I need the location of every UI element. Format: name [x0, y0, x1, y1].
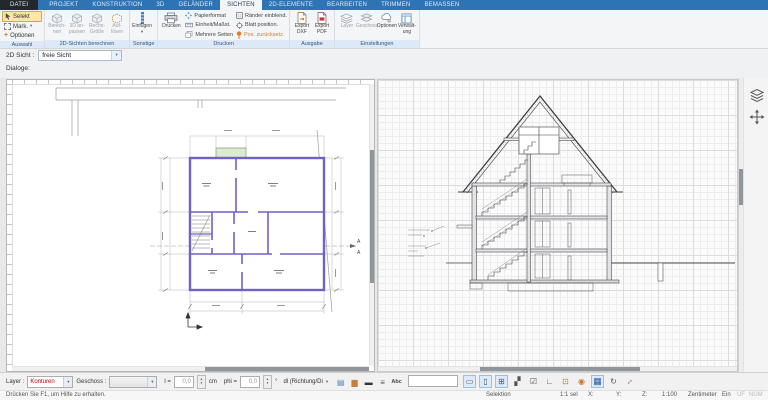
aufloesen-label: Auf- lösen	[111, 24, 123, 36]
einheit-massstab-button[interactable]: Einheit/Maßst.	[185, 21, 233, 30]
status-z-label: Z:	[642, 392, 647, 398]
auswahl-optionen-label: Optionen	[10, 33, 34, 39]
check-option-icon[interactable]: ☑	[527, 375, 540, 388]
geschoss-field-label: Geschoss :	[76, 379, 106, 385]
tab-bemassen[interactable]: BEMASSEN	[417, 0, 466, 10]
length-field-label: l =	[164, 379, 171, 385]
status-help-text: Drücken Sie F1, um Hilfe zu erhalten.	[6, 392, 106, 398]
layer-value: Konturen	[30, 379, 54, 385]
ribbon-group-berechnen: Berech- nen 3D an- passen Rechn- Größe A…	[45, 10, 130, 48]
fill-style-icon[interactable]: ▆	[348, 376, 361, 389]
line-style-icon[interactable]: ≡	[376, 376, 389, 389]
length-input[interactable]: 0,0	[174, 376, 194, 388]
tab-bearbeiten[interactable]: BEARBEITEN	[320, 0, 374, 10]
selection-box-icon	[4, 23, 11, 30]
group-label-ausgabe: Ausgabe	[290, 40, 334, 48]
right-tool-strip	[738, 78, 768, 373]
einheit-massstab-label: Einheit/Maßst.	[195, 22, 230, 28]
layer-field-label: Layer :	[6, 379, 24, 385]
right-viewport-vscrollbar[interactable]	[739, 78, 744, 373]
raender-einblenden-button[interactable]: Ränder einblend.	[236, 11, 287, 20]
diagonal-arrows-icon[interactable]: ↕	[623, 375, 636, 388]
section-drawing[interactable]	[378, 80, 735, 368]
export-dxf-label: Export DXF	[295, 24, 309, 36]
raster-snap-icon[interactable]: ▦	[591, 375, 604, 388]
mehrere-seiten-label: Mehrere Seiten	[195, 32, 233, 38]
drucken-label: Drucken	[162, 24, 181, 30]
center-snap-icon[interactable]: ◉	[575, 375, 588, 388]
length-value: 0,0	[183, 379, 191, 385]
spin-down-icon: ▾	[267, 382, 269, 386]
layer-label: Layer	[341, 24, 354, 30]
chevron-down-icon: ▾	[147, 377, 156, 387]
angle-snap-icon[interactable]: ▞	[511, 375, 524, 388]
status-scale-sel: 1:1 sel	[560, 392, 578, 398]
tab-2d-elemente[interactable]: 2D-ELEMENTE	[262, 0, 320, 10]
bottom-toolbar: Layer : Konturen ▾ Geschoss : ▾ l = 0,0 …	[0, 372, 768, 391]
raender-einblenden-label: Ränder einblend.	[245, 13, 287, 19]
group-label-einstellungen: Einstellungen	[335, 40, 419, 48]
angle-unit: °	[275, 379, 277, 385]
export-pdf-button[interactable]: Export PDF	[312, 11, 332, 39]
text-style-icon[interactable]: Abc	[390, 376, 403, 389]
tab-trimmen[interactable]: TRIMMEN	[374, 0, 417, 10]
ribbon-group-ausgabe: Export DXF Export PDF Ausgabe	[290, 10, 335, 48]
drucken-button[interactable]: Drucken	[160, 11, 182, 39]
position-circle-icon	[236, 22, 243, 29]
corner-snap-icon[interactable]: ∟	[543, 375, 556, 388]
anpassen-3d-button[interactable]: 3D an- passen	[67, 11, 87, 39]
group-label-berechnen: 2D-Sichten berechnen	[45, 40, 129, 48]
angle-input[interactable]: 0,0	[240, 376, 260, 388]
viewport-section[interactable]	[377, 79, 738, 372]
cursor-icon	[5, 13, 11, 20]
selekt-label: Selekt	[13, 14, 30, 20]
viewport-floor-plan[interactable]: A A	[6, 79, 375, 372]
chevron-down-icon: ▾	[111, 51, 121, 60]
group-label-drucken: Drucken	[158, 40, 289, 48]
blatt-position-button[interactable]: Blatt position.	[236, 21, 287, 30]
rotate-tool-icon[interactable]: ↻	[607, 375, 620, 388]
angle-field-label: phi =	[224, 379, 237, 385]
blatt-position-label: Blatt position.	[245, 22, 278, 28]
geschoss-label: Geschoss	[356, 24, 378, 30]
layer-button[interactable]: Layer	[337, 11, 357, 39]
status-mode: Selektion	[486, 392, 511, 398]
papierformat-button[interactable]: Papierformat	[185, 11, 233, 20]
right-viewport-hscrollbar[interactable]	[378, 366, 737, 371]
angle-spinner[interactable]: ▴▾	[263, 375, 272, 389]
status-uf-indicator: UF	[737, 392, 745, 398]
tab-projekt[interactable]: PROJEKT	[42, 0, 85, 10]
layers-tool-button[interactable]	[748, 86, 766, 104]
hatch-style-icon[interactable]: ▤	[334, 376, 347, 389]
frame-icon	[236, 12, 243, 19]
mehrere-seiten-button[interactable]: Mehrere Seiten	[185, 30, 233, 39]
pos-zuruecksetzen-button[interactable]: Pos. zurücksetz.	[236, 30, 287, 39]
layers-icon	[749, 88, 765, 103]
length-unit: cm	[209, 379, 217, 385]
pos-zuruecksetzen-label: Pos. zurücksetz.	[244, 32, 284, 38]
export-pdf-label: Export PDF	[315, 24, 329, 36]
dialoge-panel-header: Dialoge:	[0, 62, 768, 78]
vscroll-thumb[interactable]	[739, 169, 743, 205]
rechengroesse-button[interactable]: Rechn- Größe	[87, 11, 107, 39]
vicado-cad-window: { "ribbon": { "tabs": [ {"label":"DATEI"…	[0, 0, 768, 400]
view-selector-dropdown[interactable]: freie Sicht ▾	[38, 50, 122, 61]
pin-icon	[236, 31, 242, 39]
spin-down-icon: ▾	[200, 382, 202, 386]
hscroll-thumb[interactable]	[205, 367, 369, 371]
vscroll-thumb[interactable]	[370, 150, 374, 283]
tab-gelaender[interactable]: GELÄNDER	[171, 0, 220, 10]
chevron-down-icon: ▾	[30, 24, 32, 29]
berechnen-button[interactable]: Berech- nen	[47, 11, 67, 39]
ribbon-group-drucken: Drucken Papierformat Einheit/Maßst. Mehr…	[158, 10, 290, 48]
view-selector-value: freie Sicht	[42, 52, 71, 59]
dialoge-label: Dialoge:	[6, 65, 30, 72]
expand-arrows-icon	[185, 12, 192, 19]
left-viewport-vscrollbar[interactable]	[369, 84, 374, 366]
anpassen-3d-label: 3D an- passen	[69, 24, 85, 36]
view-selector-bar: 2D Sicht : freie Sicht ▾	[0, 49, 768, 62]
status-bar: Drücken Sie F1, um Hilfe zu erhalten. Se…	[0, 390, 768, 400]
markieren-button[interactable]: Mark. ▾	[2, 22, 42, 31]
line-width-icon[interactable]: ▬	[362, 376, 375, 389]
section-marker-bottom: A	[357, 250, 361, 256]
status-y-label: Y:	[616, 392, 621, 398]
tab-datei[interactable]: DATEI	[0, 0, 38, 10]
berechnen-label: Berech- nen	[48, 24, 66, 36]
markieren-label: Mark.	[13, 24, 28, 30]
grid-window-icon[interactable]: ⊞	[495, 375, 508, 388]
status-ein: Ein	[722, 392, 731, 398]
tab-sichten[interactable]: SICHTEN	[220, 0, 262, 10]
export-dxf-button[interactable]: Export DXF	[292, 11, 312, 39]
angle-value: 0,0	[249, 379, 257, 385]
status-scale: 1:100	[662, 392, 677, 398]
ribbon-group-einstellungen: Layer Geschoss Optionen Verwalt- ung Ein…	[335, 10, 420, 48]
selekt-button[interactable]: Selekt	[2, 11, 42, 22]
rechengroesse-label: Rechn- Größe	[89, 24, 105, 36]
tab-3d[interactable]: 3D	[149, 0, 171, 10]
point-snap-icon[interactable]: ⊡	[559, 375, 572, 388]
pages-icon	[185, 31, 193, 38]
chevron-down-icon: ▾	[63, 377, 72, 387]
length-spinner[interactable]: ▴▾	[197, 375, 206, 389]
verwaltung-button[interactable]: Verwalt- ung	[397, 11, 417, 39]
geschoss-dropdown[interactable]: ▾	[109, 376, 157, 388]
aufloesen-button[interactable]: Auf- lösen	[107, 11, 127, 39]
chevron-down-icon: ▾	[141, 30, 143, 35]
section-marker-top: A	[357, 239, 361, 245]
ribbon-group-auswahl: Selekt Mark. ▾ + Optionen Auswahl	[0, 10, 45, 48]
auswahl-optionen-button[interactable]: + Optionen	[2, 31, 42, 40]
page-view-icon[interactable]: ▯	[479, 375, 492, 388]
einfuegen-button[interactable]: Einfügen ▾	[132, 11, 152, 39]
chevron-down-icon[interactable]: ▾	[326, 380, 328, 385]
pan-tool-button[interactable]	[748, 108, 766, 126]
ribbon-group-sonstige: Einfügen ▾ Sonstige	[130, 10, 158, 48]
status-num-indicator: NUM	[749, 392, 763, 398]
status-unit: Zentimeter	[688, 392, 717, 398]
view-selector-label: 2D Sicht :	[6, 52, 34, 59]
group-label-sonstige: Sonstige	[130, 40, 157, 48]
layer-dropdown[interactable]: Konturen ▾	[27, 376, 73, 388]
main-area: A A	[0, 78, 768, 373]
hscroll-thumb[interactable]	[480, 367, 640, 371]
tab-konstruktion[interactable]: KONSTRUKTION	[85, 0, 149, 10]
plus-icon: +	[4, 32, 8, 39]
einstellungen-optionen-label: Optionen	[377, 24, 397, 30]
einstellungen-optionen-button[interactable]: Optionen	[377, 11, 397, 39]
coordinate-input[interactable]	[408, 375, 458, 387]
direction-mode-label: dl (Richtung/Di	[283, 379, 322, 385]
group-label-auswahl: Auswahl	[0, 41, 44, 48]
left-viewport-hscrollbar[interactable]	[12, 366, 369, 371]
verwaltung-label: Verwalt- ung	[398, 24, 416, 36]
line-snap-icon[interactable]: ▭	[463, 375, 476, 388]
floor-plan-drawing[interactable]: A A	[12, 84, 368, 363]
ruler-icon	[185, 22, 193, 28]
move-arrows-icon	[749, 109, 765, 125]
ribbon: Selekt Mark. ▾ + Optionen Auswahl Berech…	[0, 10, 768, 49]
geschoss-button[interactable]: Geschoss	[357, 11, 377, 39]
ribbon-tab-bar: DATEI PROJEKT KONSTRUKTION 3D GELÄNDER S…	[0, 0, 768, 10]
status-x-label: X:	[588, 392, 594, 398]
papierformat-label: Papierformat	[194, 13, 226, 19]
